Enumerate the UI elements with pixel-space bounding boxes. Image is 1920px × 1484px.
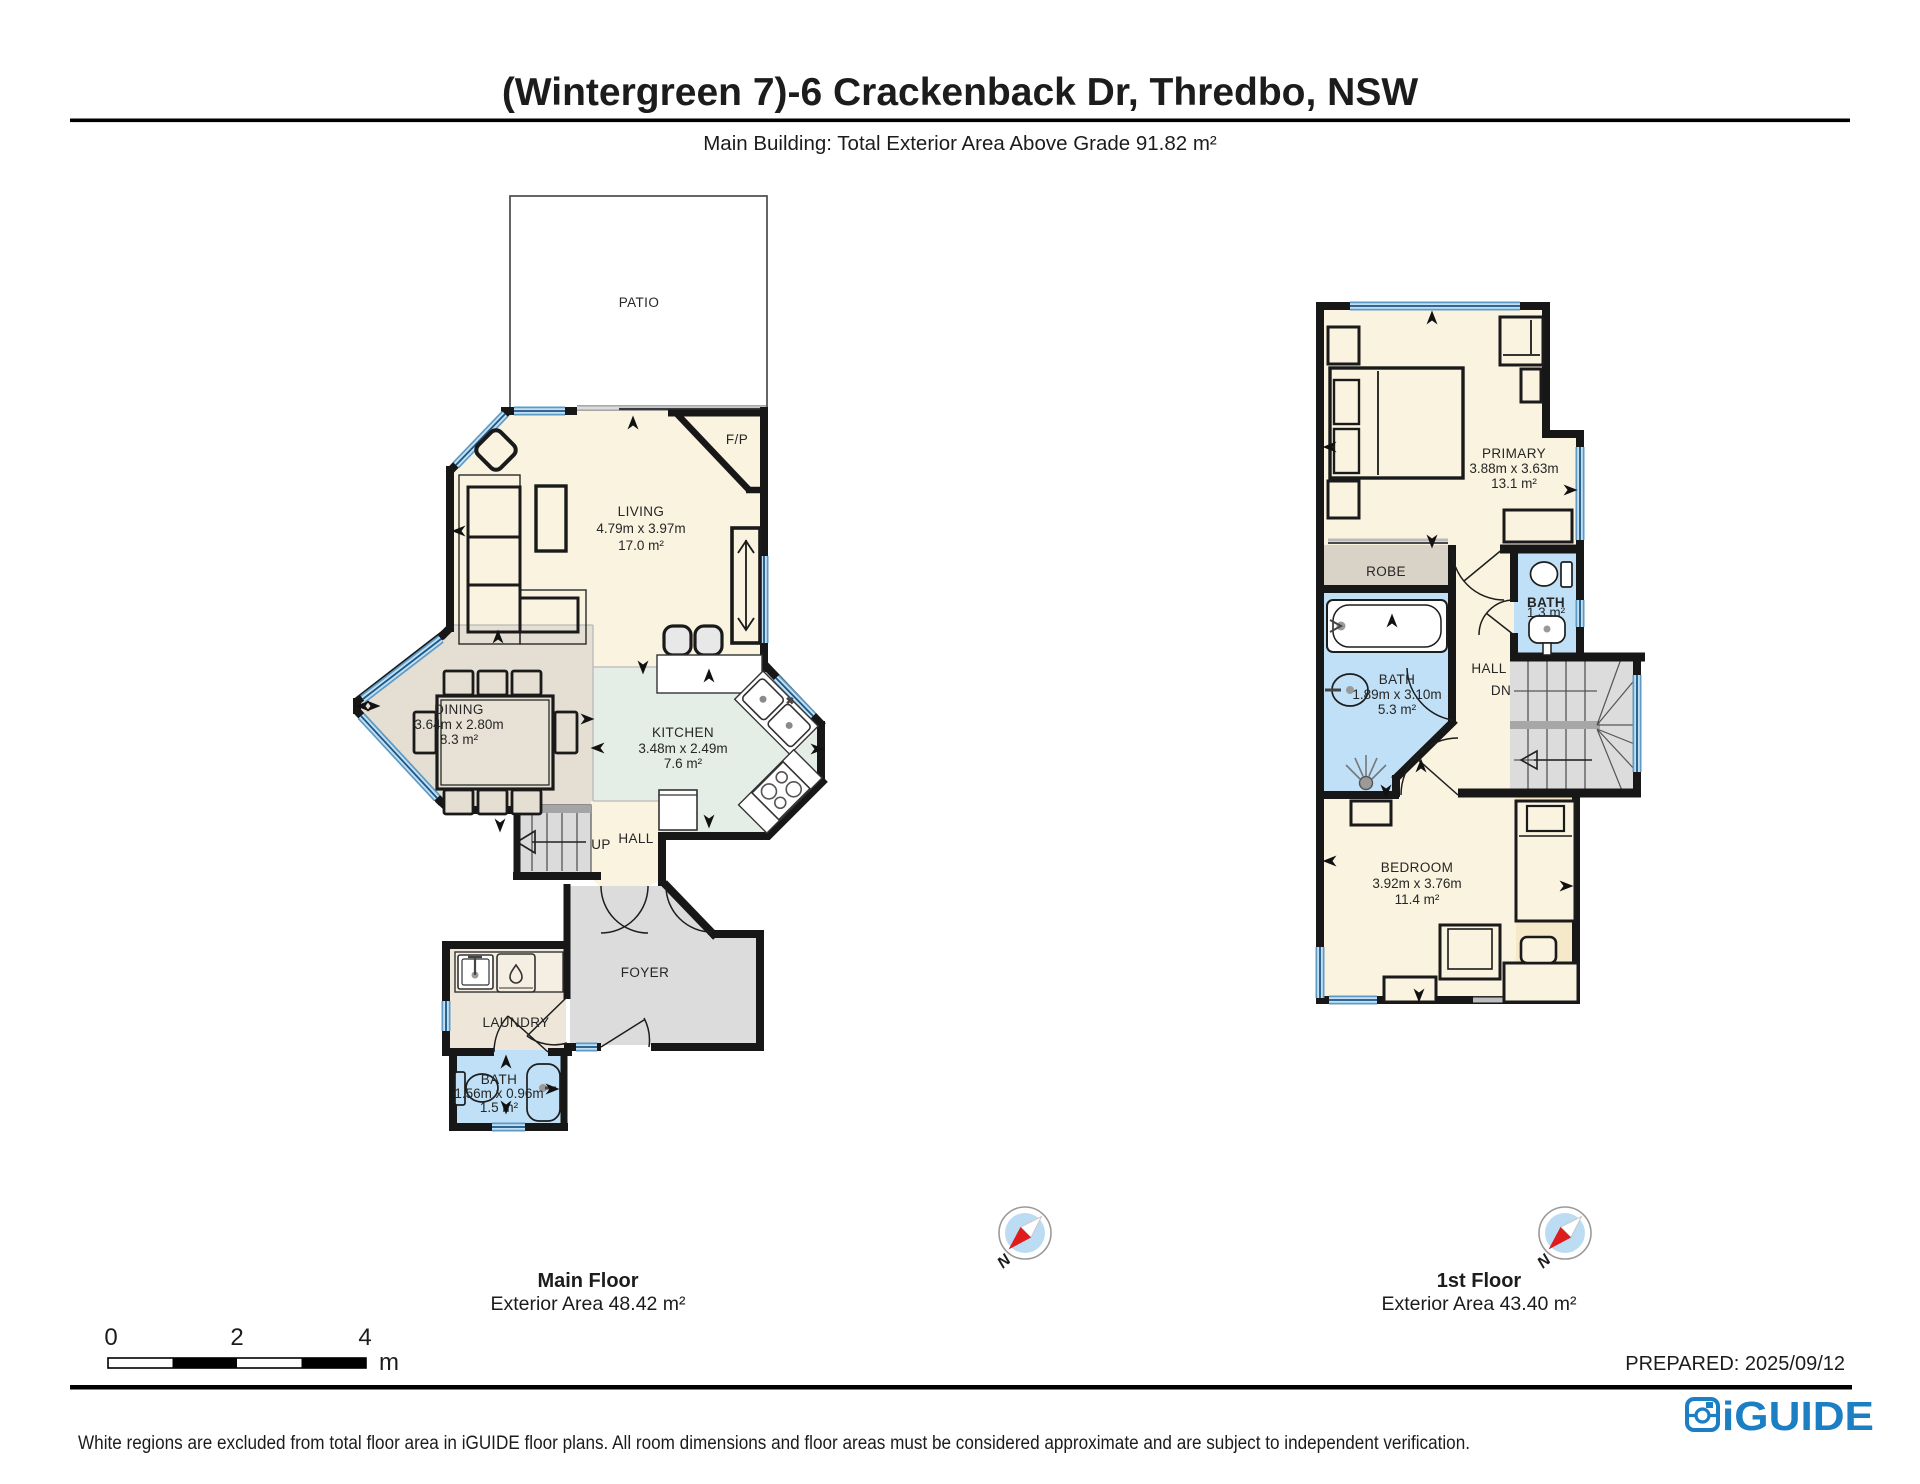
svg-text:(Wintergreen 7)-6 Crackenback: (Wintergreen 7)-6 Crackenback Dr, Thredb… bbox=[502, 71, 1419, 114]
svg-text:8.3 m²: 8.3 m² bbox=[440, 732, 479, 747]
svg-text:HALL: HALL bbox=[618, 831, 653, 846]
svg-text:Main Building: Total Exterior: Main Building: Total Exterior Area Above… bbox=[703, 132, 1217, 155]
svg-text:13.1 m²: 13.1 m² bbox=[1491, 476, 1537, 491]
svg-text:iGUIDE: iGUIDE bbox=[1722, 1393, 1874, 1439]
svg-text:1.89m x 3.10m: 1.89m x 3.10m bbox=[1352, 687, 1441, 702]
svg-text:2: 2 bbox=[230, 1324, 243, 1351]
svg-text:HALL: HALL bbox=[1471, 661, 1506, 676]
svg-text:17.0 m²: 17.0 m² bbox=[618, 538, 664, 553]
svg-text:BEDROOM: BEDROOM bbox=[1381, 860, 1454, 875]
svg-text:PRIMARY: PRIMARY bbox=[1482, 446, 1546, 461]
svg-text:FOYER: FOYER bbox=[621, 965, 670, 980]
svg-text:UP: UP bbox=[591, 837, 611, 852]
svg-text:3.92m x 3.76m: 3.92m x 3.76m bbox=[1372, 876, 1461, 891]
svg-text:4.79m x 3.97m: 4.79m x 3.97m bbox=[596, 521, 685, 536]
svg-text:1.5 m²: 1.5 m² bbox=[480, 1100, 519, 1115]
svg-text:ROBE: ROBE bbox=[1366, 564, 1406, 579]
svg-text:0: 0 bbox=[104, 1324, 117, 1351]
svg-text:LAUNDRY: LAUNDRY bbox=[482, 1015, 549, 1030]
svg-text:DINING: DINING bbox=[434, 702, 484, 717]
svg-text:3.88m x 3.63m: 3.88m x 3.63m bbox=[1469, 461, 1558, 476]
svg-text:Exterior Area 43.40 m²: Exterior Area 43.40 m² bbox=[1381, 1293, 1577, 1315]
svg-text:PREPARED: 2025/09/12: PREPARED: 2025/09/12 bbox=[1625, 1353, 1845, 1375]
svg-text:KITCHEN: KITCHEN bbox=[652, 725, 714, 740]
svg-text:F/P: F/P bbox=[726, 432, 748, 447]
svg-text:White regions are excluded fro: White regions are excluded from total fl… bbox=[78, 1433, 1470, 1454]
svg-text:5.3 m²: 5.3 m² bbox=[1378, 702, 1417, 717]
svg-text:LIVING: LIVING bbox=[618, 504, 665, 519]
svg-text:1st Floor: 1st Floor bbox=[1437, 1270, 1522, 1292]
svg-text:PATIO: PATIO bbox=[619, 295, 660, 310]
svg-text:DN: DN bbox=[1491, 683, 1511, 698]
svg-text:BATH: BATH bbox=[481, 1072, 518, 1087]
svg-text:11.4 m²: 11.4 m² bbox=[1395, 892, 1440, 907]
svg-text:3.64m x 2.80m: 3.64m x 2.80m bbox=[414, 717, 503, 732]
svg-text:3.48m x 2.49m: 3.48m x 2.49m bbox=[638, 741, 727, 756]
svg-text:BATH: BATH bbox=[1379, 672, 1416, 687]
svg-text:1.3 m²: 1.3 m² bbox=[1527, 605, 1566, 620]
svg-text:7.6 m²: 7.6 m² bbox=[664, 756, 703, 771]
svg-text:1.56m x 0.96m: 1.56m x 0.96m bbox=[454, 1086, 543, 1101]
svg-text:m: m bbox=[379, 1349, 399, 1376]
svg-text:Main Floor: Main Floor bbox=[537, 1270, 638, 1292]
svg-text:4: 4 bbox=[358, 1324, 371, 1351]
svg-text:Exterior Area 48.42 m²: Exterior Area 48.42 m² bbox=[490, 1293, 686, 1315]
